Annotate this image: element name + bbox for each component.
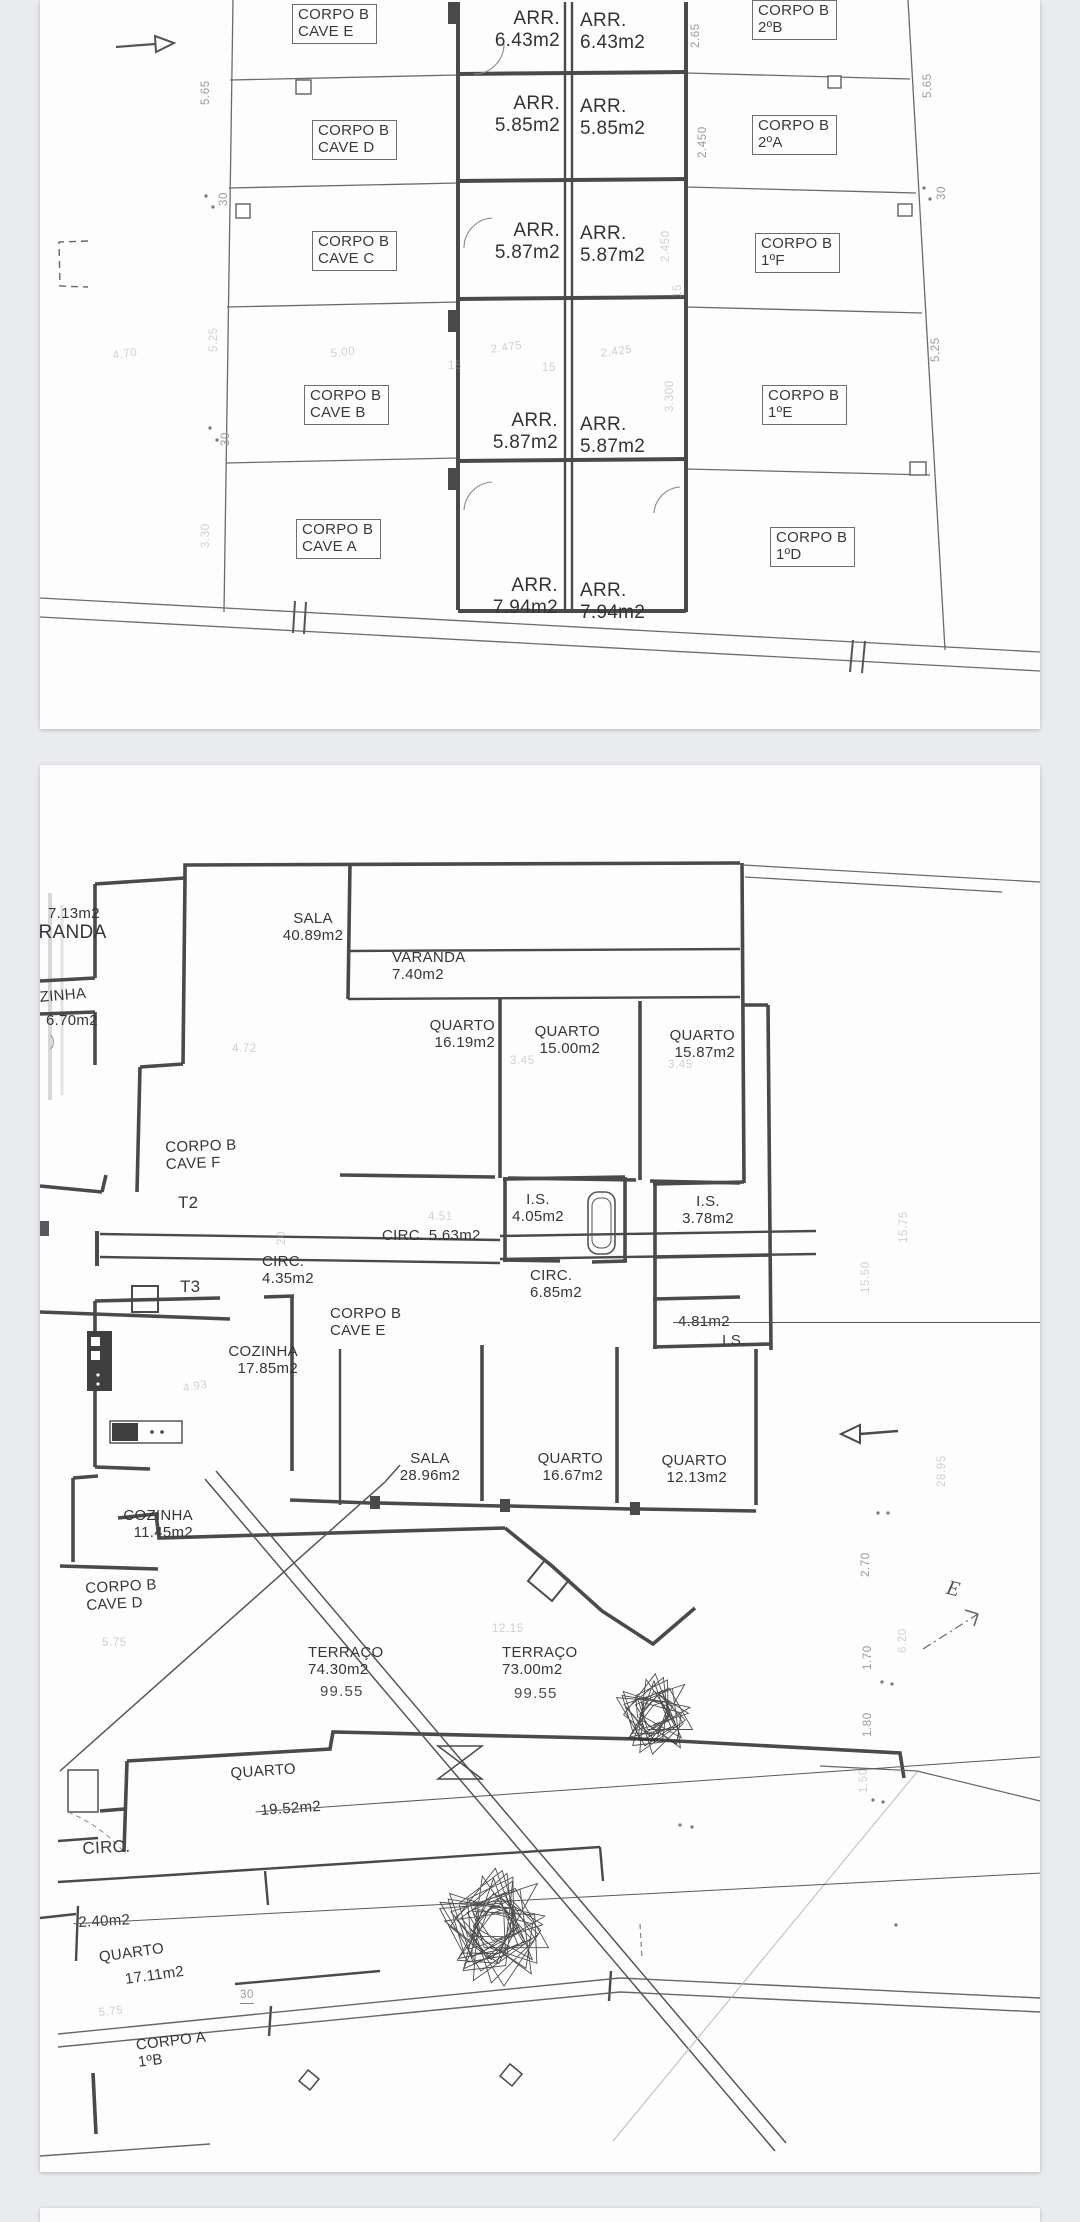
dimension-label: 15 xyxy=(448,360,462,373)
storage-room-label: ARR. 7.94m2 xyxy=(580,580,680,624)
room-label: 2.40m2 xyxy=(78,1861,1040,1931)
dimension-label: 5.75 xyxy=(102,1637,127,1650)
unit-label: CORPO B CAVE C xyxy=(312,231,397,271)
dimension-label: 4.70 xyxy=(112,347,138,364)
dimension-label: 6.20 xyxy=(897,1628,910,1653)
room-label: 17.11m2 xyxy=(124,1963,185,1988)
room-label: TERRAÇO 73.00m2 xyxy=(502,1644,597,1679)
room-label: 19.52m2 xyxy=(260,1733,1040,1820)
page2-labels: SALA 40.89m27.13m2VARANDAVARANDA 7.40m2Q… xyxy=(40,765,1040,2172)
dimension-label: 1.80 xyxy=(862,1712,875,1737)
room-label: COZINHA 17.85m2 xyxy=(188,1343,298,1378)
dimension-label: 2.450 xyxy=(697,126,710,158)
dimension-label: 5.25 xyxy=(208,327,221,352)
room-label: I.S. 4.05m2 xyxy=(498,1191,578,1226)
dimension-label: 2.475 xyxy=(490,340,523,358)
dimension-label: 5.65 xyxy=(200,80,213,105)
room-label: SALA 28.96m2 xyxy=(380,1450,480,1485)
unit-label: CORPO B CAVE E xyxy=(292,4,377,44)
dimension-label: 4.51 xyxy=(428,1211,453,1224)
room-label: SALA 40.89m2 xyxy=(258,910,368,945)
dimension-label: 3.45 xyxy=(510,1055,535,1068)
dimension-label: 20 xyxy=(276,1231,289,1245)
room-label: CORPO B CAVE D xyxy=(85,1576,158,1614)
dimension-label: 15.50 xyxy=(860,1261,873,1293)
dimension-label: 30 xyxy=(220,432,233,446)
storage-room-label: ARR. 7.94m2 xyxy=(458,575,558,619)
dimension-label: 5.00 xyxy=(330,345,356,361)
room-label: CIRC. 6.85m2 xyxy=(530,1267,610,1302)
room-label: CORPO B CAVE F xyxy=(165,1137,237,1174)
room-label: CORPO B CAVE E xyxy=(330,1305,401,1340)
room-label: 4.81m2 xyxy=(678,1313,1040,1330)
dimension-label: 2.65 xyxy=(690,23,703,48)
dimension-label: 28.95 xyxy=(936,1455,949,1487)
room-label: I.S. 3.78m2 xyxy=(668,1193,748,1228)
elevation-label: 99.55 xyxy=(320,1683,364,1700)
dimension-label: 4.93 xyxy=(182,1379,209,1396)
dimension-label: 1.50 xyxy=(858,1768,871,1793)
unit-label: CORPO B 2ºB xyxy=(752,0,837,40)
apartment-type-label: CIRC. xyxy=(82,1836,131,1858)
elevation-label: 99.55 xyxy=(514,1685,558,1702)
storage-room-label: ARR. 6.43m2 xyxy=(580,10,680,54)
unit-label: CORPO B 1ºF xyxy=(755,233,840,273)
dimension-label: 30 xyxy=(240,1989,254,2004)
room-label: COZINHA xyxy=(40,985,87,1008)
room-label: QUARTO 15.00m2 xyxy=(505,1023,600,1058)
dimension-label: 15.75 xyxy=(898,1211,911,1243)
room-label: QUARTO xyxy=(98,1940,165,1966)
page1-labels: CORPO B CAVE ECORPO B CAVE DCORPO B CAVE… xyxy=(40,0,1040,729)
storage-room-label: ARR. 5.85m2 xyxy=(460,93,560,137)
storage-room-label: ARR. 6.43m2 xyxy=(460,8,560,52)
room-label: VARANDA xyxy=(40,922,107,944)
room-label: CORPO A 1ºB xyxy=(135,2028,209,2071)
dimension-label: 30 xyxy=(936,186,949,200)
storage-room-label: ARR. 5.85m2 xyxy=(580,96,680,140)
dimension-label: 30 xyxy=(218,192,231,206)
dimension-label: 2.450 xyxy=(660,230,673,262)
dimension-label: 5.75 xyxy=(98,2004,124,2020)
dimension-label: 1.70 xyxy=(862,1645,875,1670)
room-label: CIRC. 4.35m2 xyxy=(262,1253,347,1288)
room-label: QUARTO 16.19m2 xyxy=(400,1017,495,1052)
dimension-label: 5.65 xyxy=(922,73,935,98)
dimension-label: 3.45 xyxy=(668,1059,693,1072)
dimension-label: 4.72 xyxy=(232,1043,257,1056)
dimension-label: 15 xyxy=(542,362,556,375)
room-label: TERRAÇO 74.30m2 xyxy=(308,1644,403,1679)
room-label: QUARTO 12.13m2 xyxy=(632,1452,727,1487)
document-viewer: { "viewer": {"background": "#e9ebee", "p… xyxy=(0,0,1080,2220)
document-page-1[interactable]: CORPO B CAVE ECORPO B CAVE DCORPO B CAVE… xyxy=(40,0,1040,729)
dimension-label: 2.425 xyxy=(600,344,633,362)
room-label: ) xyxy=(50,1033,55,1050)
unit-label: CORPO B CAVE B xyxy=(304,385,389,425)
room-label: 7.13m2 xyxy=(48,905,100,922)
storage-room-label: ARR. 5.87m2 xyxy=(458,410,558,454)
room-label: CIRC. 5.63m2 xyxy=(382,1227,481,1244)
dimension-label: 12.15 xyxy=(492,1623,524,1636)
dimension-label: 5.25 xyxy=(930,337,943,362)
room-label: QUARTO 16.67m2 xyxy=(508,1450,603,1485)
room-label: QUARTO 15.87m2 xyxy=(640,1027,735,1062)
dimension-label: 2.70 xyxy=(860,1552,873,1577)
storage-room-label: ARR. 5.87m2 xyxy=(460,220,560,264)
orientation-marker: E xyxy=(944,1575,963,1602)
unit-label: CORPO B 1ºD xyxy=(770,527,855,567)
unit-label: CORPO B 2ºA xyxy=(752,115,837,155)
room-label: QUARTO xyxy=(230,1760,296,1782)
dimension-label: 15 xyxy=(672,284,685,298)
apartment-type-label: T2 xyxy=(178,1193,198,1213)
apartment-type-label: T3 xyxy=(180,1277,200,1297)
unit-label: CORPO B CAVE D xyxy=(312,120,397,160)
dimension-label: 3.30 xyxy=(200,523,213,548)
room-label: I.S. xyxy=(722,1332,746,1349)
storage-room-label: ARR. 5.87m2 xyxy=(580,414,680,458)
unit-label: CORPO B CAVE A xyxy=(296,519,381,559)
room-label: VARANDA 7.40m2 xyxy=(392,949,492,984)
room-label: 6.70m2 xyxy=(46,1012,98,1029)
dimension-label: 3.300 xyxy=(664,380,677,412)
document-page-2[interactable]: SALA 40.89m27.13m2VARANDAVARANDA 7.40m2Q… xyxy=(40,765,1040,2172)
unit-label: CORPO B 1ºE xyxy=(762,385,847,425)
room-label: COZINHA 11.45m2 xyxy=(88,1507,193,1542)
